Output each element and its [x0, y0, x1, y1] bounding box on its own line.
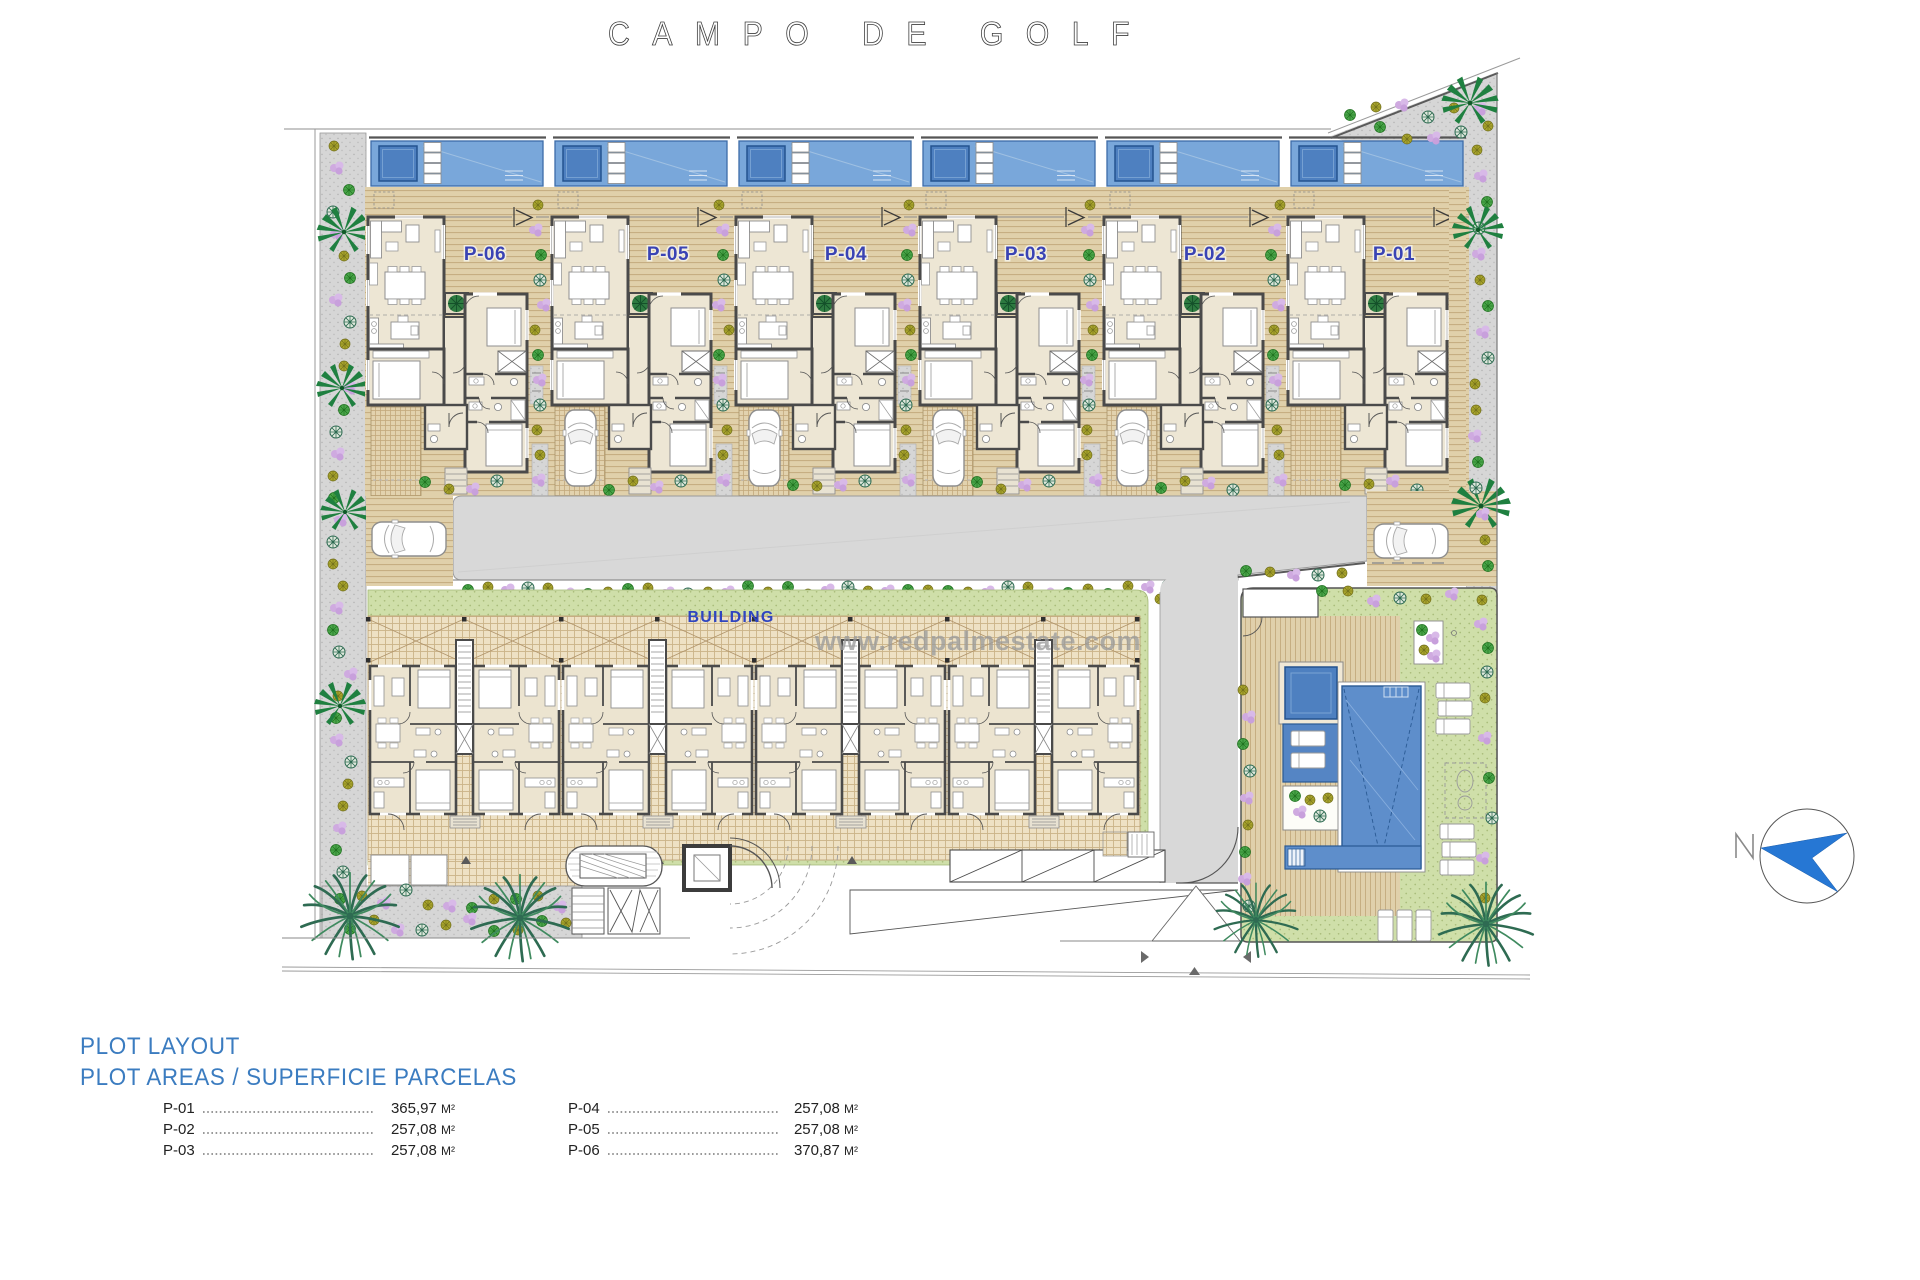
- svg-text:P-03: P-03: [1005, 244, 1047, 265]
- svg-text:PLOT LAYOUT: PLOT LAYOUT: [80, 1033, 240, 1060]
- svg-text:257,08 M²: 257,08 M²: [794, 1121, 858, 1138]
- svg-text:CAMPO DE GOLF: CAMPO DE GOLF: [608, 15, 1152, 52]
- svg-text:P-02: P-02: [1184, 244, 1226, 265]
- svg-text:257,08 M²: 257,08 M²: [391, 1121, 455, 1138]
- svg-text:P-04: P-04: [568, 1100, 600, 1117]
- svg-text:www.redpalmestate.com: www.redpalmestate.com: [814, 626, 1141, 656]
- svg-text:BUILDING: BUILDING: [688, 609, 775, 626]
- svg-text:365,97 M²: 365,97 M²: [391, 1100, 455, 1117]
- svg-text:P-03: P-03: [163, 1142, 195, 1159]
- svg-text:P-06: P-06: [464, 244, 506, 265]
- svg-text:P-02: P-02: [163, 1121, 195, 1138]
- svg-text:P-05: P-05: [568, 1121, 600, 1138]
- svg-text:PLOT AREAS / SUPERFICIE PARCEL: PLOT AREAS / SUPERFICIE PARCELAS: [80, 1064, 517, 1091]
- svg-text:P-01: P-01: [163, 1100, 195, 1117]
- svg-text:P-06: P-06: [568, 1142, 600, 1159]
- svg-text:370,87 M²: 370,87 M²: [794, 1142, 858, 1159]
- svg-text:257,08 M²: 257,08 M²: [794, 1100, 858, 1117]
- svg-text:P-04: P-04: [825, 244, 867, 265]
- svg-text:257,08 M²: 257,08 M²: [391, 1142, 455, 1159]
- svg-text:P-01: P-01: [1373, 244, 1415, 265]
- svg-text:P-05: P-05: [647, 244, 689, 265]
